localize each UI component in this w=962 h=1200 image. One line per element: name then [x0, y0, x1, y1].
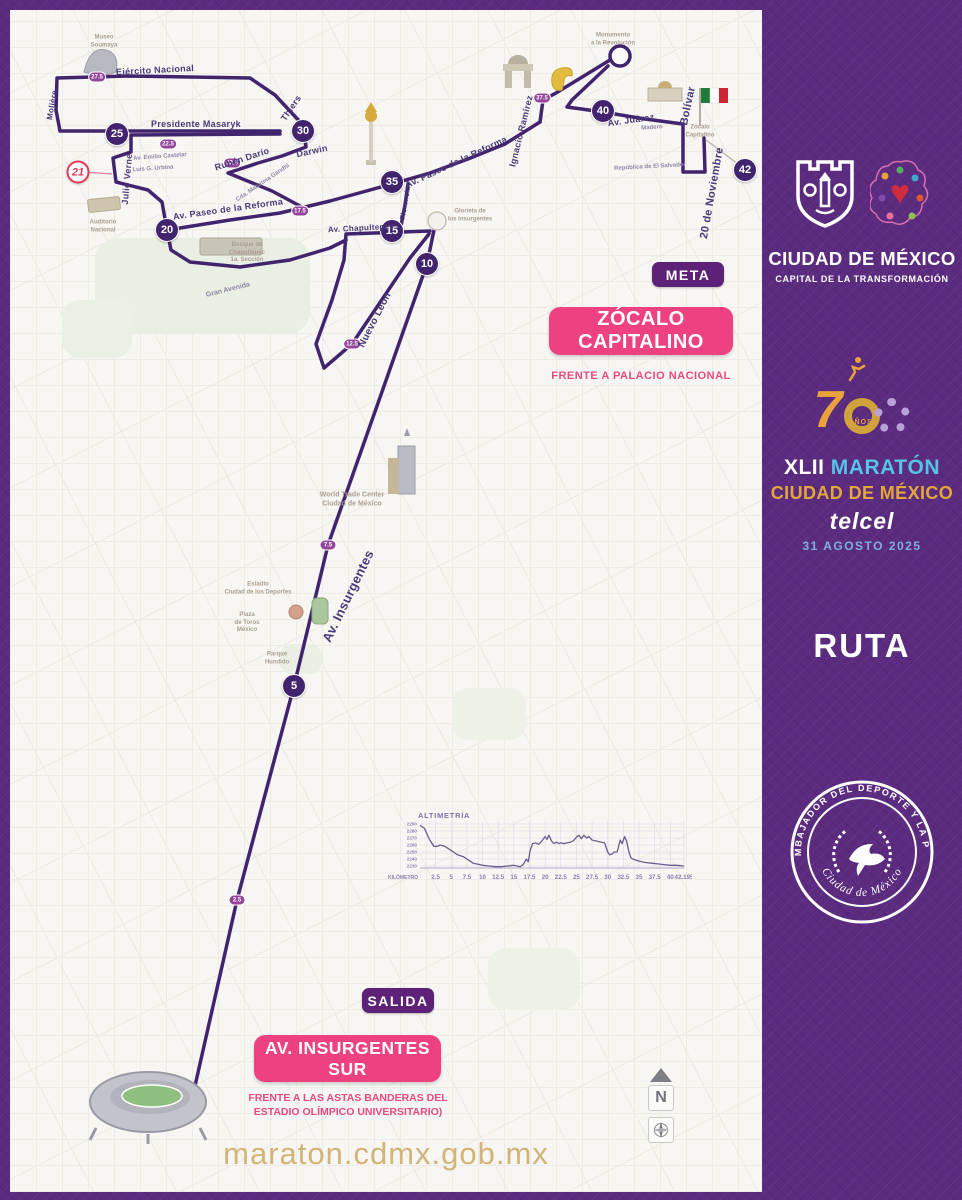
svg-text:37.5: 37.5 [649, 874, 662, 881]
svg-text:2270: 2270 [407, 836, 418, 841]
start-banner: AV. INSURGENTES SUR [254, 1035, 441, 1082]
svg-text:10: 10 [479, 874, 486, 881]
anniversary-7: 7 [814, 387, 843, 434]
poster-root: 51015202530354042212.57.512.517.522.527.… [0, 0, 962, 1200]
svg-text:17.5: 17.5 [523, 874, 536, 881]
elevation-profile-line [420, 825, 684, 866]
svg-text:2.5: 2.5 [431, 874, 440, 881]
event-date: 31 AGOSTO 2025 [802, 539, 921, 553]
svg-text:5: 5 [450, 874, 454, 881]
city-logo-title: CIUDAD DE MÉXICO [768, 248, 955, 270]
svg-text:25: 25 [573, 874, 580, 881]
anniversary-ring-2 [874, 398, 910, 434]
svg-text:Ciudad de México: Ciudad de México [819, 866, 905, 899]
badge-bottom-text: Ciudad de México [819, 866, 905, 899]
finish-banner: ZÓCALO CAPITALINO [549, 307, 733, 355]
map-area [10, 10, 762, 1192]
anniversary-700-logo: 7 AÑOS [814, 370, 911, 434]
svg-text:2250: 2250 [407, 850, 418, 855]
route-section-label: RUTA [813, 627, 910, 665]
event-city: CIUDAD DE MÉXICO [771, 483, 953, 504]
svg-text:2290: 2290 [407, 822, 418, 827]
compass-n-label: N [648, 1085, 674, 1111]
laurel-left-icon [834, 830, 847, 872]
svg-text:2240: 2240 [407, 857, 418, 862]
svg-text:32.5: 32.5 [617, 874, 630, 881]
svg-text:35: 35 [636, 874, 643, 881]
svg-text:15: 15 [510, 874, 517, 881]
dove-icon [849, 844, 885, 876]
svg-text:27.5: 27.5 [586, 874, 599, 881]
start-sub-label: FRENTE A LAS ASTAS BANDERAS DEL ESTADIO … [243, 1092, 453, 1119]
cdmx-shield-icon [794, 158, 856, 230]
svg-text:2260: 2260 [407, 843, 418, 848]
meta-badge: META [652, 262, 724, 287]
svg-text:KILÓMETRO: KILÓMETRO [388, 873, 418, 881]
svg-text:2280: 2280 [407, 829, 418, 834]
svg-text:7.5: 7.5 [463, 874, 472, 881]
anios-label: AÑOS [848, 419, 872, 426]
svg-text:20: 20 [542, 874, 549, 881]
svg-text:2230: 2230 [407, 864, 418, 869]
city-logo-subtitle: CAPITAL DE LA TRANSFORMACIÓN [775, 274, 948, 284]
finish-sub-label: FRENTE A PALACIO NACIONAL [540, 369, 742, 383]
svg-text:ALTIMETRÍA: ALTIMETRÍA [418, 811, 470, 820]
svg-text:22.5: 22.5 [555, 874, 568, 881]
svg-text:40: 40 [667, 874, 674, 881]
svg-text:♥: ♥ [890, 174, 910, 212]
compass-arrow-icon [650, 1068, 672, 1082]
svg-text:12.5: 12.5 [492, 874, 505, 881]
event-numeral: XLII [784, 456, 825, 479]
ambassador-badge: EMBAJADOR DEL DEPORTE Y LA PAZ Ciudad de… [787, 777, 937, 932]
altimetry-chart: 22902280227022602250224022302.557.51012.… [388, 810, 692, 892]
laurel-right-icon [877, 830, 890, 872]
svg-text:42.195: 42.195 [675, 874, 692, 881]
event-title: XLII MARATÓN [784, 456, 940, 480]
event-name: MARATÓN [831, 456, 940, 479]
svg-text:30: 30 [604, 874, 611, 881]
compass: N [644, 1068, 678, 1143]
runner-icon [842, 356, 868, 382]
compass-rose-icon [648, 1117, 674, 1143]
salida-badge: SALIDA [362, 988, 434, 1013]
sidebar: ♥ CIUDAD DE MÉXICO CAPITAL DE LA TRANSFO… [762, 0, 962, 1200]
cdmx-heart-icon: ♥ [870, 158, 930, 230]
sponsor-logo: telcel [830, 508, 895, 535]
